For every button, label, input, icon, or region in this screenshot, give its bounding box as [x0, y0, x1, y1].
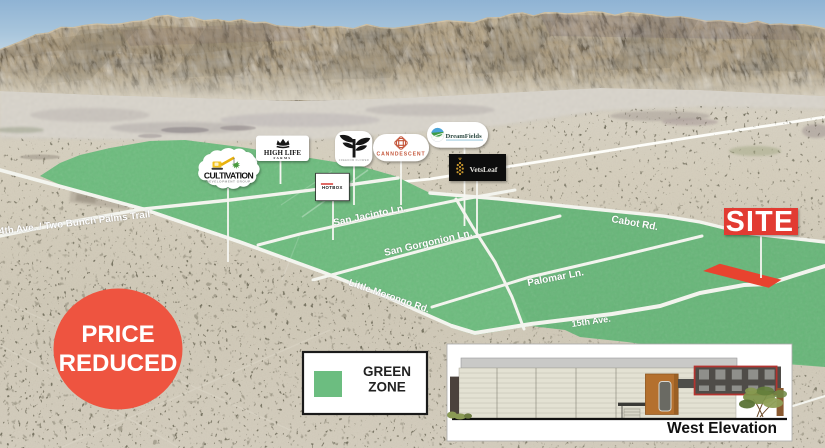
svg-text:West Elevation: West Elevation: [667, 420, 777, 437]
svg-text:DEVELOPMENT GROUP: DEVELOPMENT GROUP: [206, 179, 250, 183]
svg-text:CANNDESCENT: CANNDESCENT: [377, 151, 426, 157]
svg-text:PRICE: PRICE: [81, 321, 154, 348]
svg-text:HOTBOX: HOTBOX: [322, 185, 343, 190]
svg-text:DreamFields: DreamFields: [446, 133, 483, 140]
svg-text:REDUCED: REDUCED: [59, 350, 178, 377]
svg-text:GREEN: GREEN: [363, 364, 411, 379]
svg-text:VetsLeaf: VetsLeaf: [470, 165, 498, 174]
svg-text:FREEDOM FLOWER: FREEDOM FLOWER: [339, 158, 369, 162]
svg-text:FARMS: FARMS: [273, 156, 291, 160]
svg-text:SITE: SITE: [726, 206, 795, 238]
svg-text:ZONE: ZONE: [368, 380, 406, 395]
